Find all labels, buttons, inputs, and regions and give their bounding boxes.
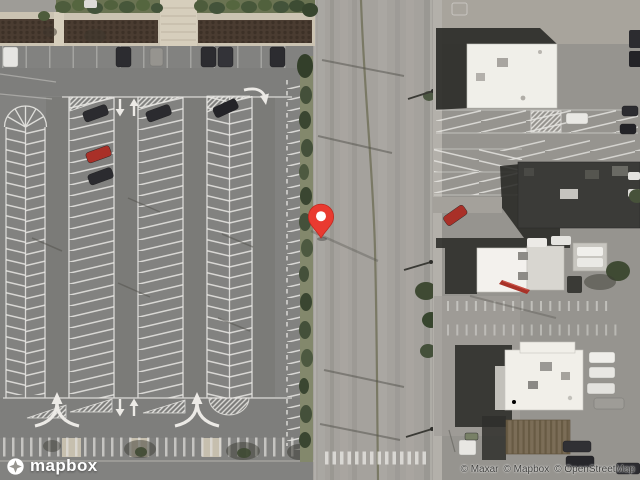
attribution-maxar[interactable]: © Maxar (461, 464, 499, 475)
attribution-openstreetmap[interactable]: © OpenStreetMap (554, 464, 635, 475)
map-canvas[interactable]: mapbox © Maxar © Mapbox © OpenStreetMap (0, 0, 640, 480)
building-roof (505, 350, 583, 410)
building-shadow (482, 416, 506, 460)
map-attribution: © Maxar © Mapbox © OpenStreetMap (461, 464, 635, 475)
mapbox-logo[interactable]: mapbox (6, 456, 98, 476)
mapbox-logo-text: mapbox (30, 456, 98, 476)
driveway (433, 197, 502, 213)
attribution-mapbox[interactable]: © Mapbox (504, 464, 550, 475)
mapbox-logo-icon (6, 457, 25, 476)
north-landscaping (0, 0, 318, 46)
satellite-imagery (0, 0, 640, 480)
